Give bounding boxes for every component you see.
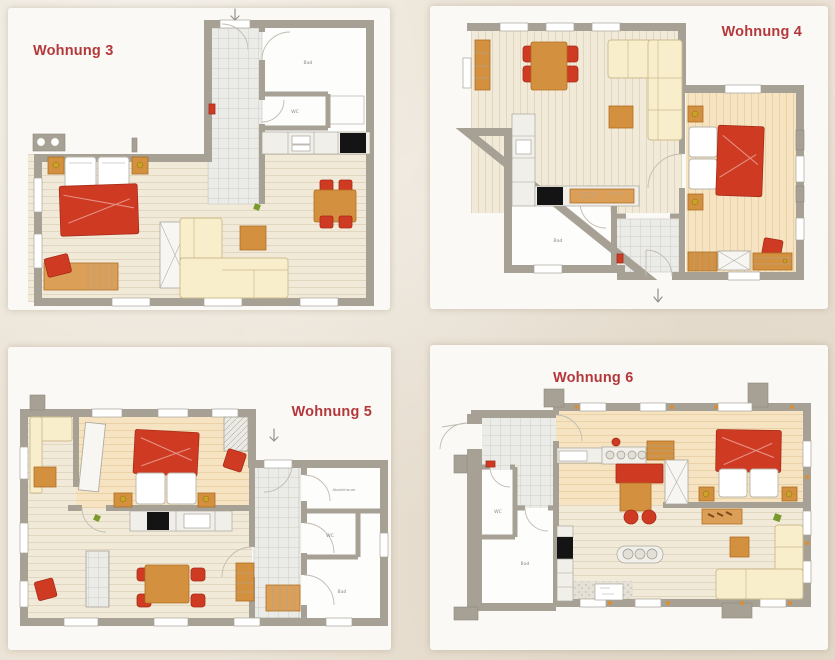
floor-plan-card-wohnung-6: WC Bad Wohnung 6 [430,345,828,650]
entry-tiles-2 [515,470,556,508]
floor-plan-card-wohnung-5: Abstellraum WC Bad Wohnung 5 [8,347,391,650]
sideboard [475,40,490,90]
plan-title-wohnung-6: Wohnung 6 [553,370,633,386]
tiled-stove [86,551,109,607]
room-label-wc: WC [326,533,334,539]
floor-plan-wohnung-4: Bad Wohnung 4 [430,6,828,309]
floor-plan-wohnung-5: Abstellraum WC Bad Wohnung 5 [8,347,391,650]
floor-plan-wohnung-3: Bad WC Wohnung 3 [8,8,390,310]
wall-decor-red [617,254,623,263]
plan-title-wohnung-3: Wohnung 3 [33,43,113,59]
floor-plan-card-wohnung-4: Bad Wohnung 4 [430,6,828,309]
room-label-wc: WC [291,109,299,115]
island-hob [617,546,663,563]
sink-unit [595,584,623,600]
plan-title-wohnung-4: Wohnung 4 [722,24,802,40]
drawer-cabinet [647,441,674,460]
entrance-arrow-icon [270,429,278,441]
room-label-bad: Bad [304,60,313,66]
room-label-wc: WC [494,509,502,515]
kitchen [130,511,232,531]
wardrobe [224,417,248,451]
stairs [266,585,300,611]
wall-pillar [796,130,804,150]
wall-stub [132,138,137,152]
floor-plan-wohnung-6: WC Bad Wohnung 6 [430,345,828,650]
fridge [665,460,688,504]
floor-plan-card-wohnung-3: Bad WC Wohnung 3 [8,8,390,310]
kitchen-counter [262,132,370,154]
stool [730,537,749,557]
left-wall-lower [467,449,482,609]
shoe-rack [702,509,742,524]
room-label-abstellraum: Abstellraum [333,487,356,492]
room-label-bad: Bad [554,238,563,244]
coffee-table [240,226,266,250]
room-label-bad: Bad [521,561,530,567]
entrance-arrow-icon [231,9,239,20]
wc-floor [482,470,515,537]
entrance-arrow-icon [654,289,662,302]
sideboard [236,563,254,601]
room-label-bad: Bad [338,589,347,595]
plan-title-wohnung-5: Wohnung 5 [292,404,372,420]
floor-plans-page: Bad WC Wohnung 3 [0,0,835,660]
dressers [688,251,792,271]
wall-pillar [796,186,804,202]
wall-decor-red [486,461,495,467]
double-bed [48,157,148,236]
side-table [609,106,633,128]
stove-column [557,526,573,601]
wall-decor-red [209,104,215,114]
corridor-tiles [208,24,262,204]
bathroom-floor-2 [515,508,557,539]
chimney [30,395,45,410]
bathroom-floor [482,537,557,603]
